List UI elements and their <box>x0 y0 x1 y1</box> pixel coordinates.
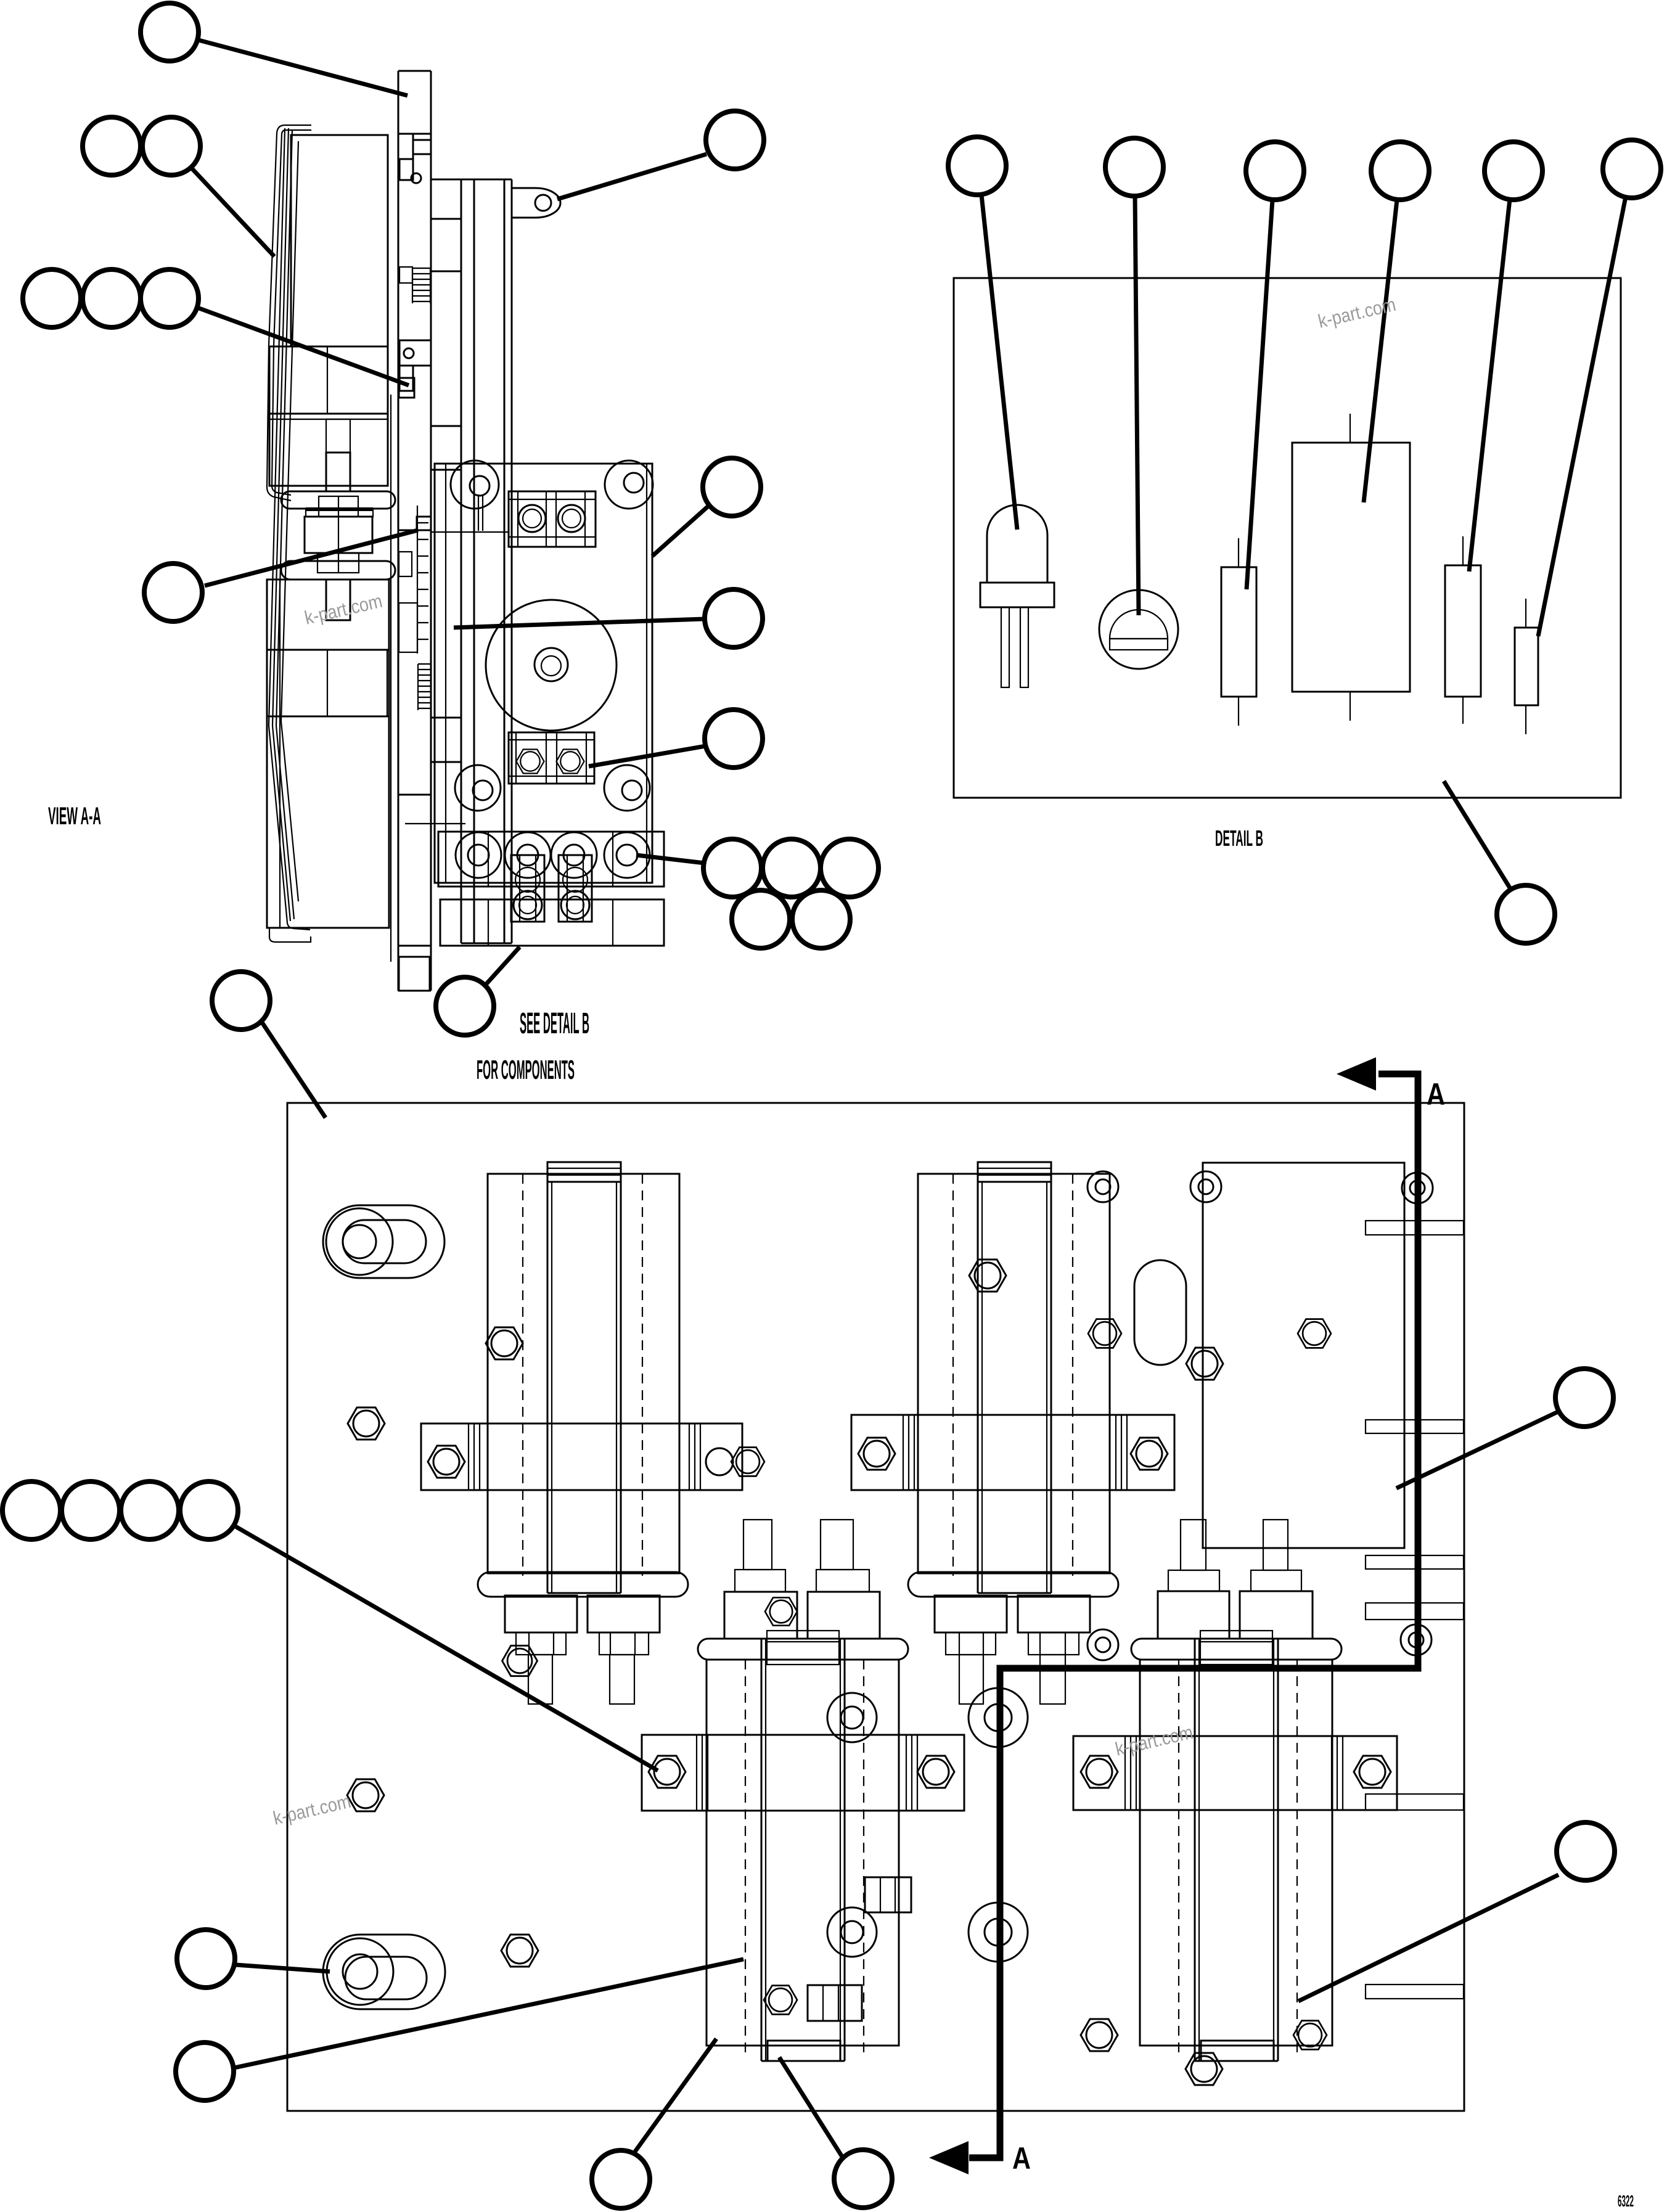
svg-text:VIEW A-A: VIEW A-A <box>48 803 101 830</box>
svg-text:A: A <box>1427 1077 1445 1112</box>
svg-text:6322: 6322 <box>1618 2192 1634 2210</box>
svg-text:FOR COMPONENTS: FOR COMPONENTS <box>477 1055 575 1085</box>
svg-text:DETAIL B: DETAIL B <box>1215 825 1263 851</box>
svg-text:A: A <box>1012 2141 1031 2176</box>
svg-text:SEE DETAIL B: SEE DETAIL B <box>520 1007 589 1040</box>
